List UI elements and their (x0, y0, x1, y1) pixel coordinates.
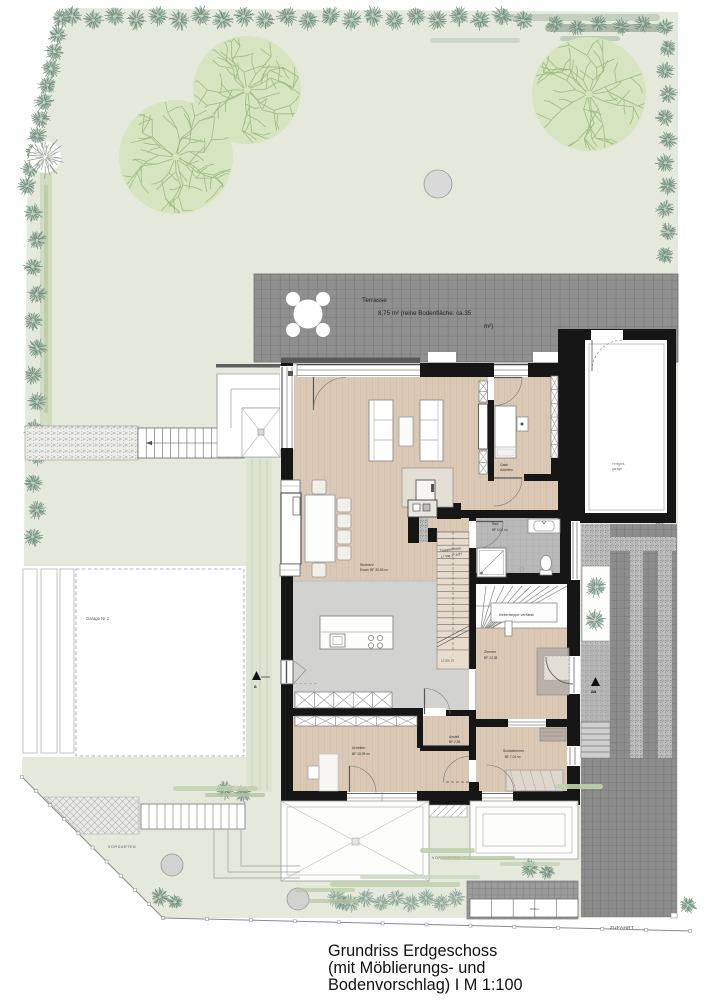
svg-text:BF 12,38: BF 12,38 (484, 656, 498, 660)
svg-text:Terrasse: Terrasse (362, 297, 387, 304)
svg-text:Garage Nr 2: Garage Nr 2 (86, 616, 110, 621)
svg-text:Bad: Bad (492, 522, 498, 526)
svg-text:BF 15,05 m²: BF 15,05 m² (352, 752, 371, 756)
svg-text:Bodenvorschlag) I M 1:100: Bodenvorschlag) I M 1:100 (328, 976, 523, 994)
svg-text:17,00/ 27: 17,00/ 27 (441, 659, 455, 663)
svg-text:ZUFAHRT: ZUFAHRT (610, 925, 634, 930)
svg-text:Abstell: Abstell (449, 735, 459, 739)
svg-text:BF 5,04 m²: BF 5,04 m² (492, 528, 508, 532)
svg-text:Kellertreppe verfliest: Kellertreppe verfliest (499, 613, 535, 617)
svg-text:8,75 m² (reine Bodenfläche: ca: 8,75 m² (reine Bodenfläche: ca.35 (378, 310, 472, 317)
svg-text:Gast/: Gast/ (500, 463, 508, 467)
svg-text:Grundriss Erdgeschoss: Grundriss Erdgeschoss (328, 942, 497, 960)
svg-text:Arbeiten: Arbeiten (352, 746, 365, 750)
svg-text:Wohnen/: Wohnen/ (360, 563, 374, 567)
svg-text:Müllbox: Müllbox (530, 907, 540, 911)
svg-text:Arbeiten: Arbeiten (500, 468, 513, 472)
svg-text:Fertigteil-: Fertigteil- (612, 462, 625, 466)
svg-text:Zimmer: Zimmer (484, 650, 497, 654)
svg-text:Schlafzimmer: Schlafzimmer (503, 749, 525, 753)
svg-text:BF 7,04 m²: BF 7,04 m² (505, 755, 521, 759)
svg-text:garage: garage (612, 467, 622, 471)
svg-text:Essen BF 35,96 m²: Essen BF 35,96 m² (360, 568, 389, 572)
svg-text:BF 2,38: BF 2,38 (449, 740, 460, 744)
svg-text:VORGARTEN: VORGARTEN (108, 845, 136, 849)
svg-text:(mit Möblierungs- und: (mit Möblierungs- und (328, 959, 485, 977)
svg-text:aa: aa (591, 689, 597, 694)
svg-text:m²): m²) (484, 323, 493, 330)
